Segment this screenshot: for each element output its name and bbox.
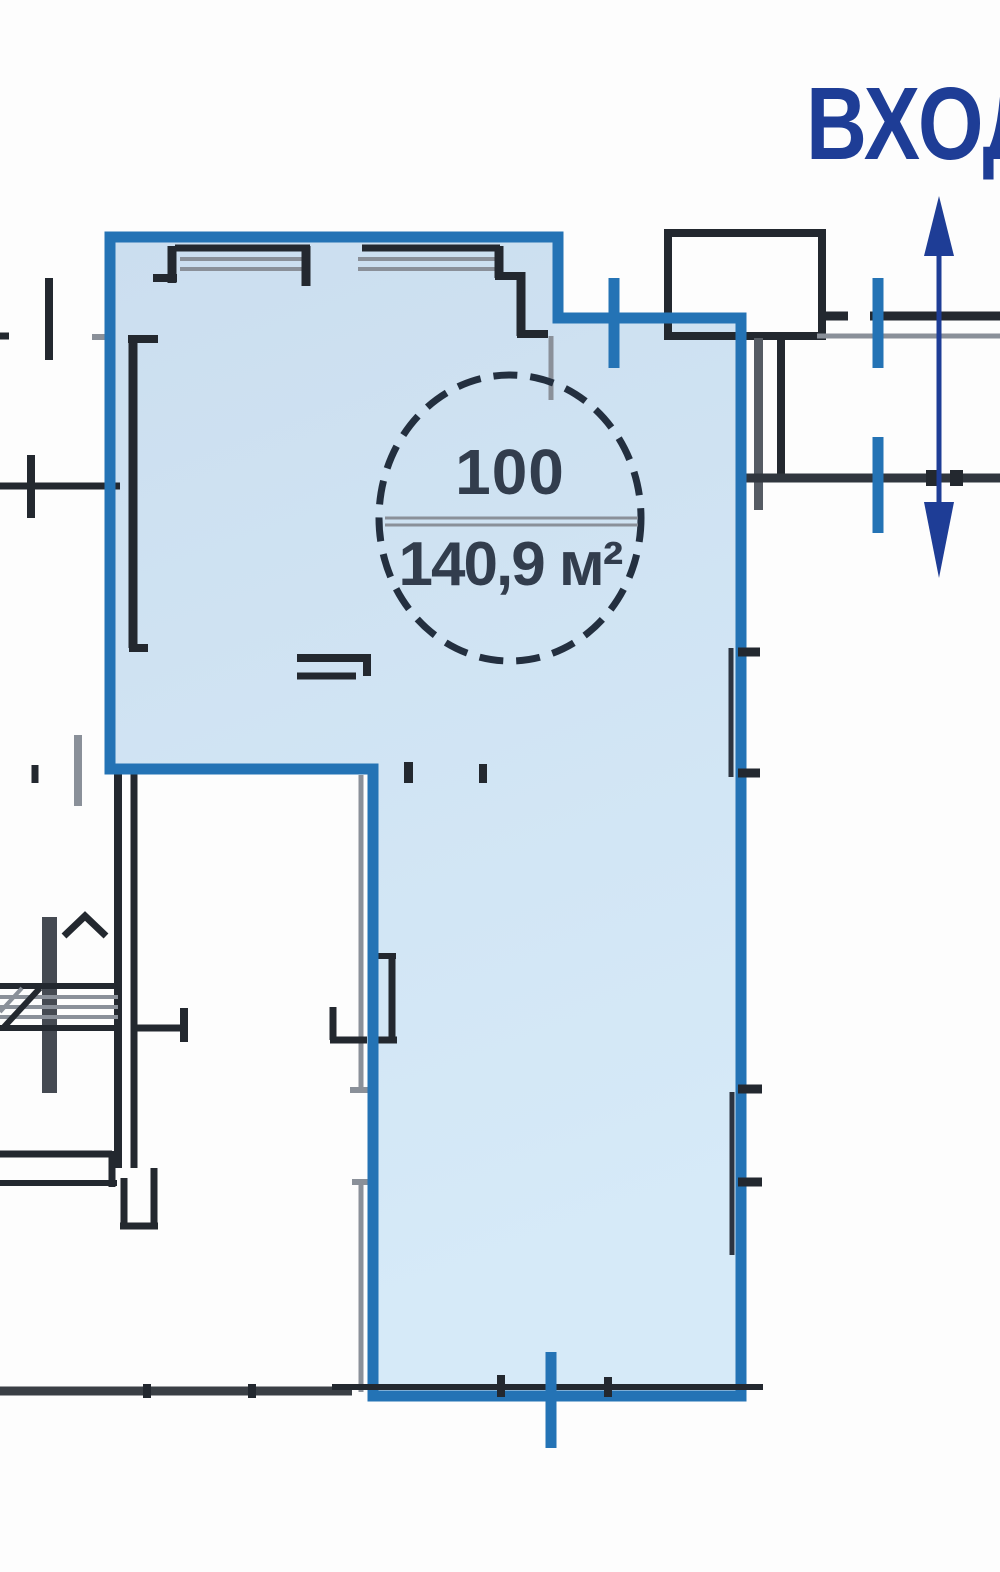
entrance-label: ВХОД (806, 72, 1000, 175)
left-wall-fragments (0, 278, 120, 806)
arrow-head-down (924, 502, 954, 578)
floor-plan-drawing (0, 0, 1000, 1572)
unit-area[interactable] (110, 237, 741, 1396)
floor-plan: 100 140,9 м² ВХОД (0, 0, 1000, 1572)
stairwell (0, 772, 188, 1229)
stairs-direction-chevron (64, 916, 106, 936)
arrow-head-up (924, 196, 954, 256)
entrance-arrow (924, 196, 954, 578)
unit-number: 100 (380, 440, 640, 504)
bottom-left-wall (0, 1384, 352, 1398)
unit-area-label: 140,9 м² (360, 534, 660, 596)
